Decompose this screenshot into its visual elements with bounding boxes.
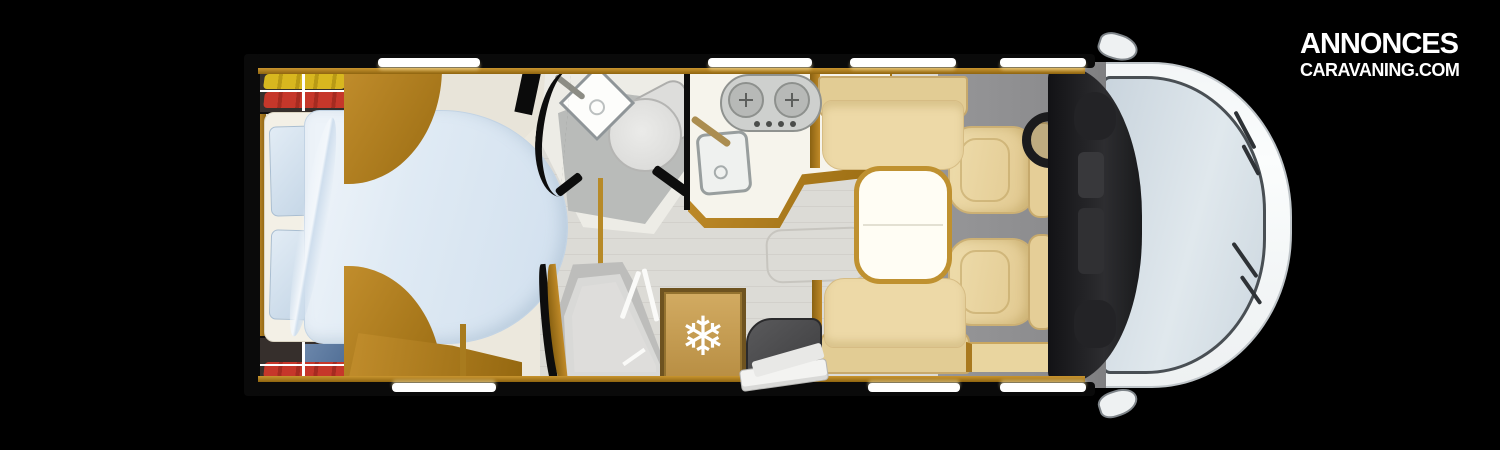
rear-wall xyxy=(244,54,260,396)
window xyxy=(868,383,960,392)
snowflake-icon: ❄ xyxy=(680,310,725,364)
glovebox xyxy=(1074,300,1116,348)
wall-wood-lining xyxy=(258,376,1085,382)
clothes-blue xyxy=(302,344,350,362)
window xyxy=(378,58,480,67)
window xyxy=(850,58,956,67)
dashboard-console xyxy=(1078,208,1104,274)
bench-seat-door-side xyxy=(824,278,966,348)
burner-left xyxy=(728,82,764,118)
wardrobe-top xyxy=(256,68,354,114)
clothes-yellow xyxy=(263,74,347,89)
cab-door-window xyxy=(1000,58,1086,67)
window xyxy=(708,58,812,67)
kitchen-partition xyxy=(684,62,690,210)
dashboard-console xyxy=(1078,152,1104,198)
bedroom-partition-low xyxy=(460,324,466,378)
instrument-cluster xyxy=(1074,92,1116,140)
watermark-line1: ANNONCES xyxy=(1300,30,1448,59)
wall-wood-lining xyxy=(258,68,1085,74)
dinette-table xyxy=(854,166,952,284)
sidewall-top xyxy=(244,54,1095,68)
side-mirror-left xyxy=(1095,28,1141,65)
cab-door-window xyxy=(1000,383,1086,392)
hob-knobs xyxy=(754,121,760,127)
sidewall-bottom xyxy=(244,382,1095,396)
motorhome-floorplan: ❄ A xyxy=(0,0,1500,450)
window xyxy=(392,383,496,392)
side-mirror-right xyxy=(1095,384,1141,421)
hanger-rail xyxy=(302,340,305,380)
watermark-logo: ANNONCES CARAVANING.COM xyxy=(1300,30,1448,79)
clothes-red xyxy=(263,92,349,108)
shelf-divider xyxy=(260,90,346,92)
refrigerator: ❄ xyxy=(660,288,746,386)
bench-seat-kitchen-side xyxy=(822,100,964,170)
shelf-divider xyxy=(260,364,346,366)
watermark-line2: CARAVANING.COM xyxy=(1300,61,1448,79)
burner-right xyxy=(774,82,810,118)
sliding-door-track xyxy=(598,178,603,268)
